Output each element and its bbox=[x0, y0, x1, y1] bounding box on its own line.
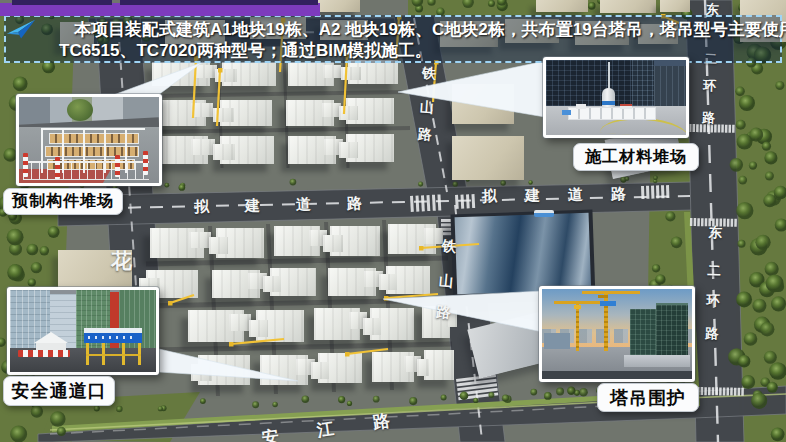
road-label-anjiang-char3: 路 bbox=[372, 412, 391, 431]
label-prefab-component-yard: 预制构件堆场 bbox=[3, 188, 123, 215]
label-material-yard: 施工材料堆场 bbox=[573, 143, 699, 171]
slide-accent-bar-dark-segment bbox=[120, 0, 318, 5]
road-label-anjiang-char1: 安 bbox=[261, 428, 280, 442]
inset-safety-passage bbox=[7, 287, 159, 375]
inset-material-yard bbox=[543, 57, 689, 138]
road-label-tieshan-lower: 铁 山 路 bbox=[436, 239, 457, 320]
banner-text-line2: TC6515、TC7020两种型号；通过BIM模拟施工。 bbox=[59, 41, 432, 61]
road-label-nijian-left: 拟建 道路 bbox=[194, 195, 362, 214]
inset-prefab-component-yard bbox=[16, 94, 162, 186]
label-tower-crane-fence: 塔吊围护 bbox=[597, 383, 699, 412]
inset-tower-crane-fence bbox=[539, 286, 695, 382]
road-label-anjiang-char2: 江 bbox=[316, 420, 335, 439]
slide-accent-bar-dark-segment bbox=[12, 0, 112, 5]
construction-site-bim-overview: 铁 山 路 铁 山 路 拟建 道路 拟建 道路 东 二 环 路 东 二 环 路 bbox=[0, 0, 786, 442]
road-label-hua: 花 bbox=[111, 250, 132, 271]
road-label-nijian-right: 拟建 道路 bbox=[482, 186, 626, 204]
road-label-tieshan-upper: 铁 山 路 bbox=[417, 66, 436, 142]
banner-text-line1: 本项目装配式建筑A1地块19栋、A2 地块19栋、C地块2栋，共布置19台塔吊，… bbox=[74, 20, 786, 40]
project-description-banner: 本项目装配式建筑A1地块19栋、A2 地块19栋、C地块2栋，共布置19台塔吊，… bbox=[4, 15, 782, 63]
road-label-dongerhuan-lower: 东 二 环 路 bbox=[705, 226, 722, 340]
paper-plane-icon bbox=[6, 17, 38, 43]
label-safety-passage: 安全通道口 bbox=[3, 376, 115, 406]
